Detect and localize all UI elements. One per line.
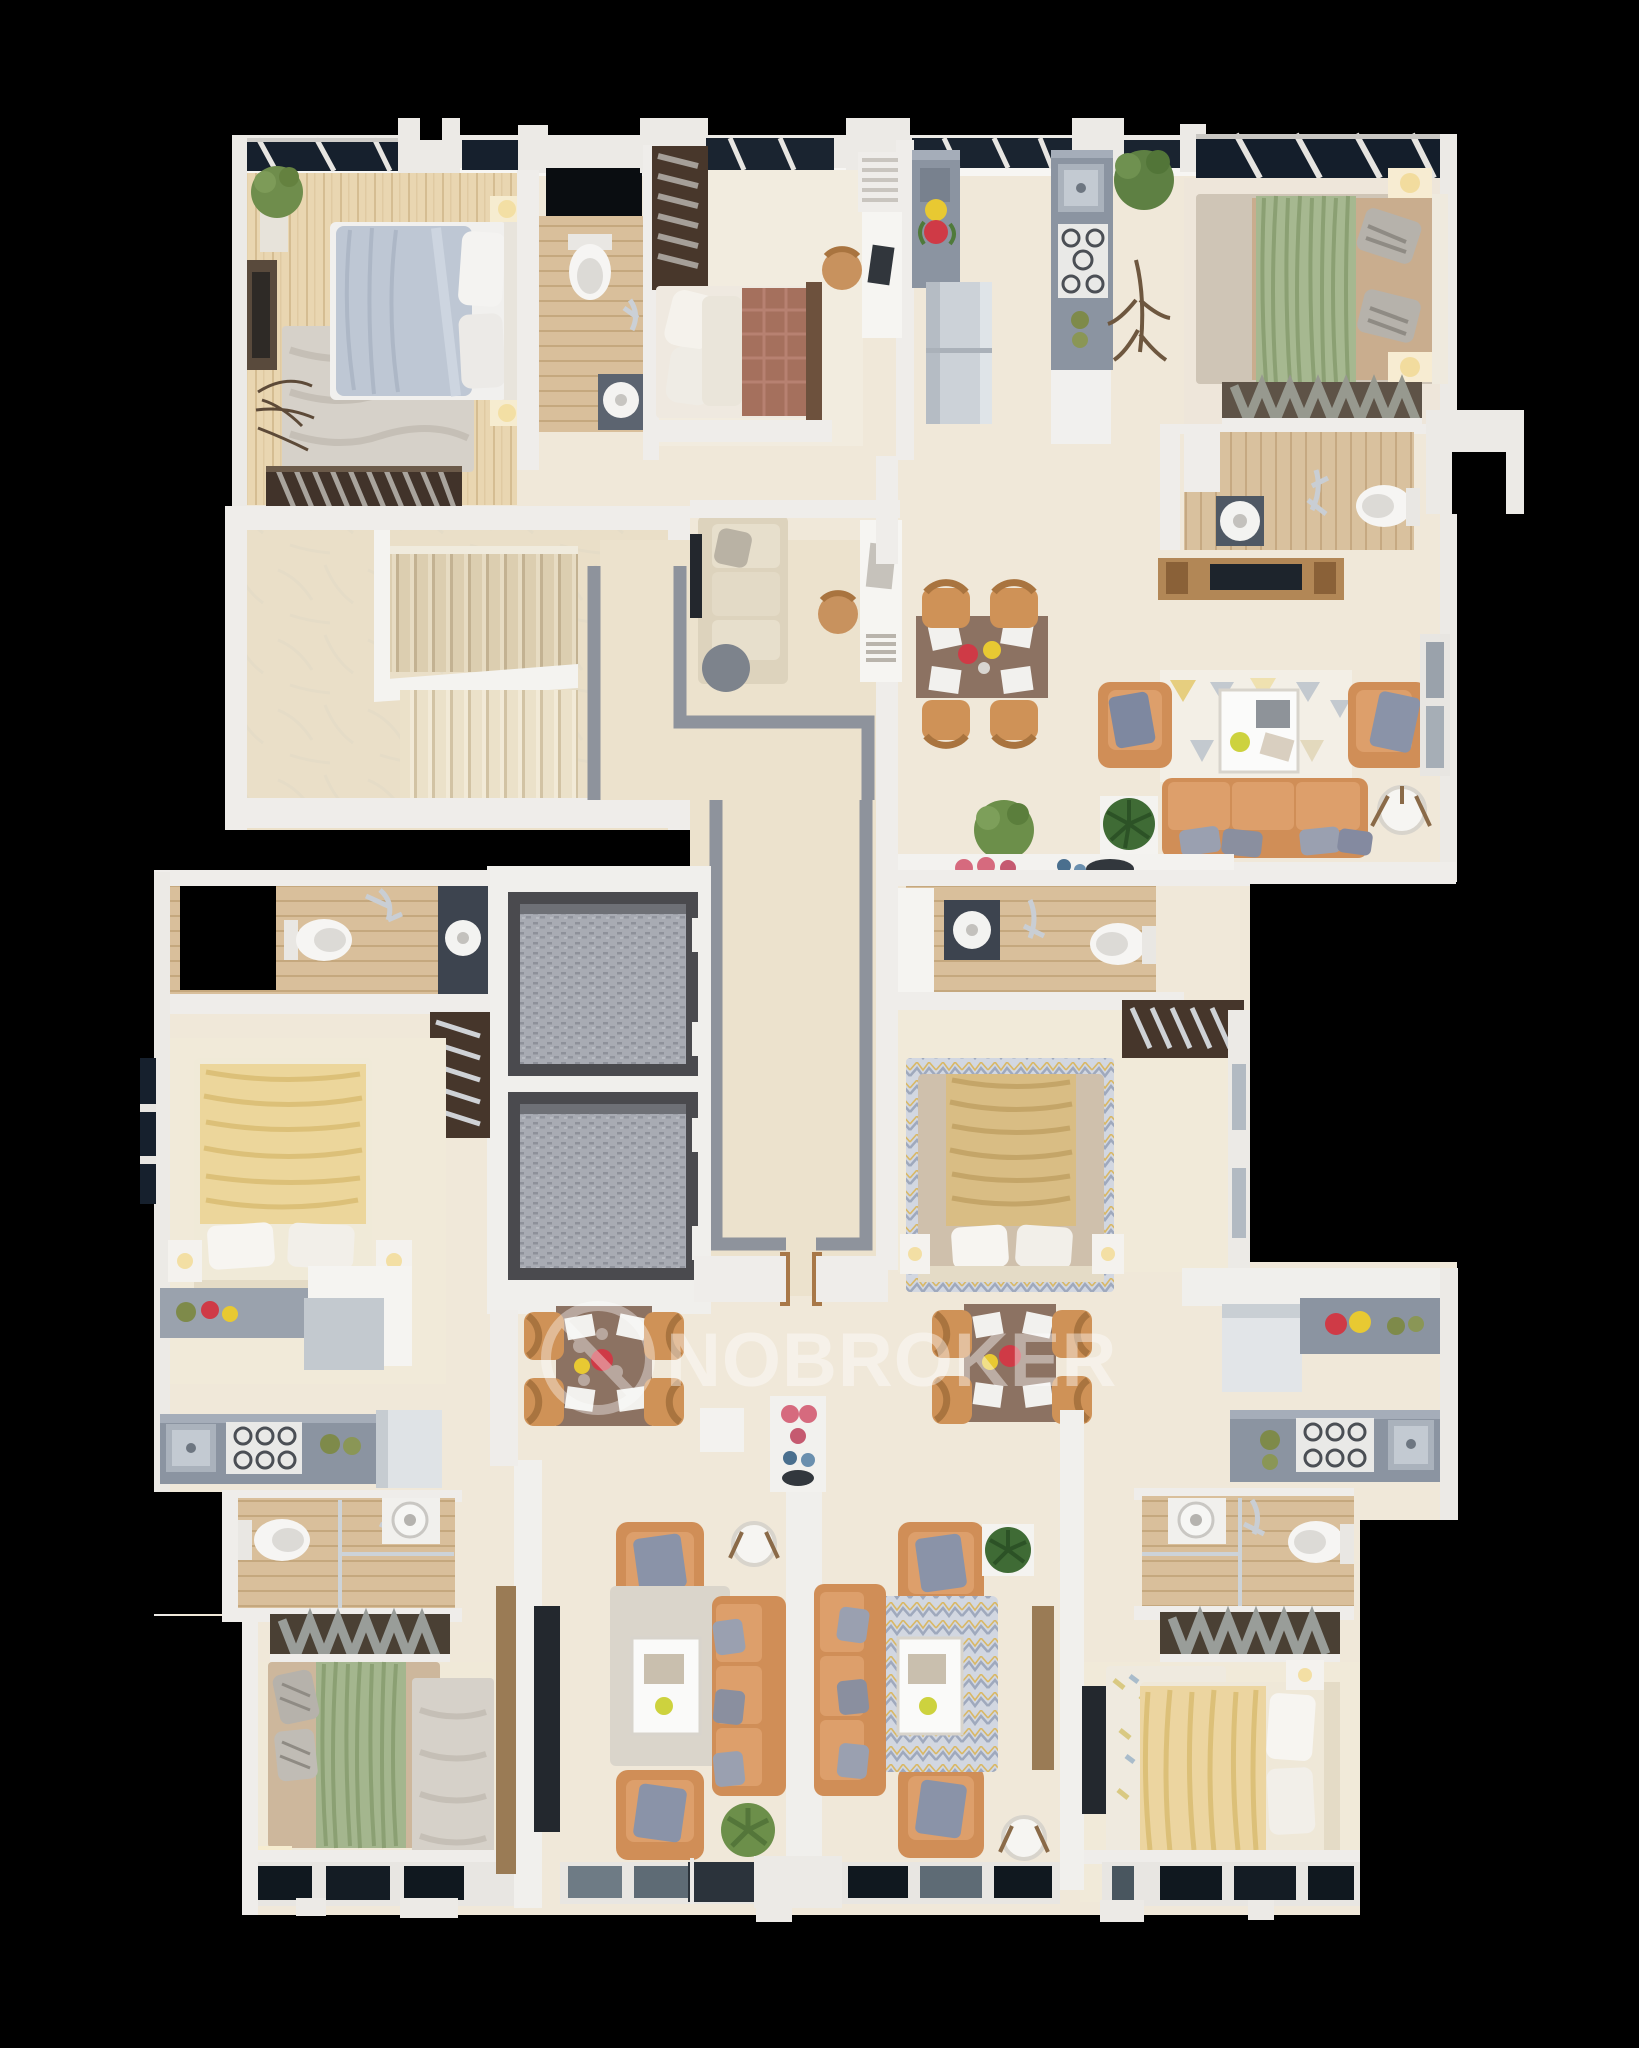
svg-text:NOBROKER: NOBROKER	[666, 1318, 1117, 1403]
